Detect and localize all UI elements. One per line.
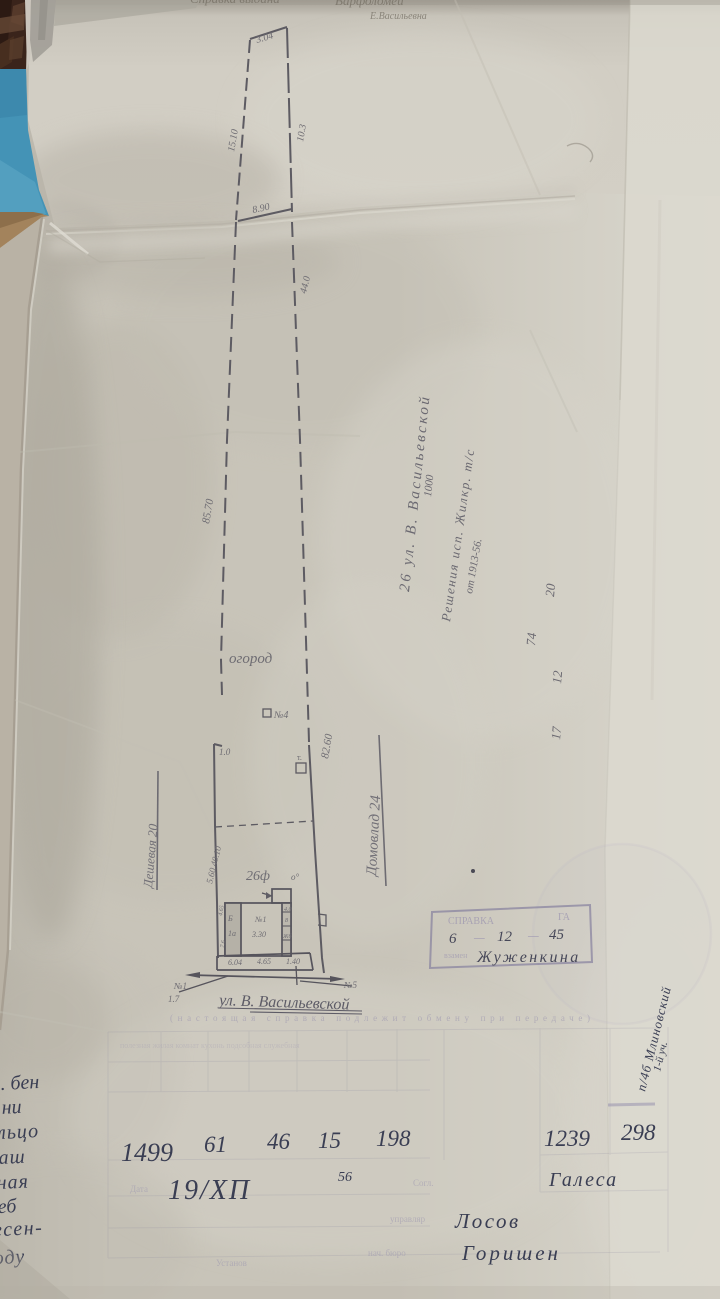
svg-text:рная: рная bbox=[0, 1170, 29, 1194]
svg-text:17: 17 bbox=[548, 726, 564, 741]
svg-text:1.40: 1.40 bbox=[286, 957, 300, 966]
svg-text:1499: 1499 bbox=[121, 1138, 173, 1167]
svg-text:л. бен: л. бен bbox=[0, 1071, 40, 1096]
svg-text:полезная жилая комнат: полезная жилая комнат кухонь подсобная с… bbox=[120, 1041, 300, 1050]
svg-text:несен-: несен- bbox=[0, 1217, 44, 1242]
svg-text:нач. бюро: нач. бюро bbox=[368, 1248, 406, 1258]
svg-text:20: 20 bbox=[542, 583, 558, 598]
svg-text:СПРАВКА: СПРАВКА bbox=[448, 916, 495, 927]
svg-text:ГА: ГА bbox=[558, 912, 571, 923]
svg-text:12: 12 bbox=[497, 929, 513, 945]
svg-text:Жб: Жб bbox=[282, 933, 292, 940]
svg-text:т.: т. bbox=[297, 753, 302, 762]
svg-text:управляр: управляр bbox=[390, 1214, 426, 1224]
svg-text:74: 74 bbox=[523, 632, 539, 647]
svg-text:1а: 1а bbox=[228, 929, 236, 938]
svg-text:1239: 1239 bbox=[544, 1126, 591, 1151]
svg-text:8: 8 bbox=[285, 918, 288, 924]
svg-text:еб: еб bbox=[0, 1195, 18, 1218]
svg-text:19/ХП: 19/ХП bbox=[168, 1175, 251, 1206]
svg-text:ни: ни bbox=[1, 1096, 22, 1119]
svg-text:198: 198 bbox=[376, 1126, 411, 1151]
svg-text:6: 6 bbox=[449, 931, 457, 947]
svg-text:Жуженкина: Жуженкина bbox=[476, 949, 581, 966]
svg-text:Е.Васильевна: Е.Васильевна bbox=[369, 11, 427, 22]
svg-text:15: 15 bbox=[318, 1128, 341, 1153]
svg-text:наш: наш bbox=[0, 1146, 26, 1170]
svg-text:№4: №4 bbox=[273, 710, 288, 721]
svg-text:взамен: взамен bbox=[444, 951, 468, 960]
svg-text:4.0: 4.0 bbox=[284, 906, 292, 913]
svg-text:1.0: 1.0 bbox=[219, 747, 231, 757]
svg-text:Установ: Установ bbox=[216, 1258, 247, 1268]
svg-text:Лосов: Лосов bbox=[454, 1209, 521, 1233]
svg-text:Дата: Дата bbox=[130, 1184, 148, 1194]
svg-text:ельцо: ельцо bbox=[0, 1120, 40, 1145]
svg-text:—: — bbox=[527, 928, 539, 942]
svg-text:№1: №1 bbox=[173, 981, 187, 991]
svg-text:огород: огород bbox=[229, 651, 273, 667]
svg-text:Б: Б bbox=[227, 914, 233, 923]
svg-text:4.65: 4.65 bbox=[257, 957, 271, 966]
svg-text:45: 45 bbox=[549, 927, 565, 943]
svg-text:Справка выдана: Справка выдана bbox=[190, 0, 280, 6]
svg-text:о°: о° bbox=[291, 872, 300, 882]
svg-text:1.7: 1.7 bbox=[168, 994, 180, 1004]
svg-text:26ф: 26ф bbox=[246, 869, 270, 884]
svg-text:Горишен: Горишен bbox=[461, 1241, 561, 1265]
svg-text:Варфоломей: Варфоломей bbox=[335, 0, 404, 8]
svg-text:61: 61 bbox=[204, 1132, 227, 1157]
svg-text:№1: №1 bbox=[254, 915, 267, 924]
svg-text:6.04: 6.04 bbox=[228, 958, 242, 967]
svg-text:1000: 1000 bbox=[422, 474, 436, 498]
svg-text:3.30: 3.30 bbox=[251, 930, 266, 939]
svg-text:298: 298 bbox=[621, 1120, 656, 1145]
svg-text:56: 56 bbox=[338, 1170, 352, 1185]
svg-text:46: 46 bbox=[267, 1129, 291, 1154]
svg-text:7.6: 7.6 bbox=[220, 940, 227, 948]
svg-text:Галеса: Галеса bbox=[548, 1169, 618, 1191]
svg-text:Согл.: Согл. bbox=[413, 1178, 433, 1188]
svg-text:12: 12 bbox=[549, 670, 565, 685]
svg-text:—: — bbox=[473, 930, 485, 944]
svg-text:№5: №5 bbox=[343, 980, 357, 990]
